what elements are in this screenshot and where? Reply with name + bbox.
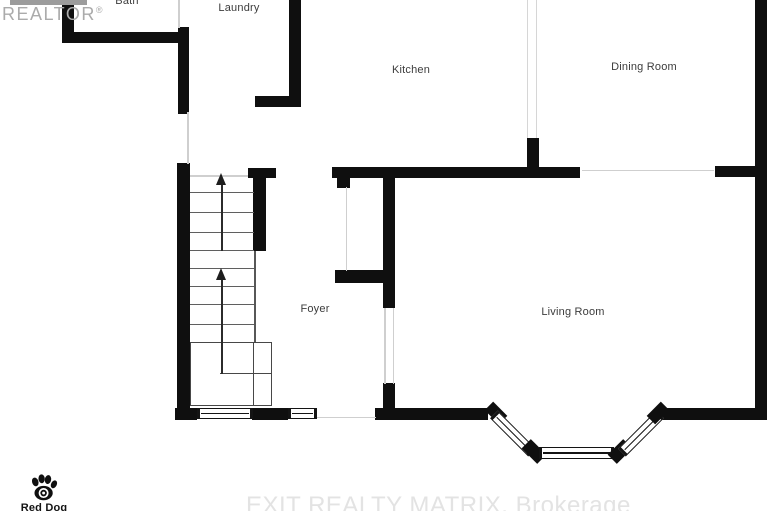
room-label-dining: Dining Room bbox=[611, 61, 677, 74]
wall-living-bottom-right bbox=[658, 408, 767, 420]
stair-rail-line bbox=[254, 251, 256, 343]
window-bay-center bbox=[539, 447, 614, 459]
wall-laundry-right bbox=[289, 0, 301, 107]
realtor-logo-text: REALTOR bbox=[2, 4, 96, 24]
stair-tread bbox=[190, 324, 256, 325]
brokerage-watermark: EXIT REALTY MATRIX, Brokerage bbox=[246, 492, 631, 511]
window-foyer-right bbox=[288, 408, 317, 419]
wall-kitchen-divider-stub bbox=[527, 138, 539, 168]
wall-stair-left bbox=[177, 163, 190, 420]
red-dog-logo: Red Dog bbox=[18, 474, 70, 511]
kitchen-dining-divider bbox=[527, 0, 537, 138]
room-label-living: Living Room bbox=[541, 306, 604, 319]
stair-tread bbox=[190, 304, 256, 305]
wall-right-outer bbox=[755, 0, 767, 420]
wall-dining-living-stub bbox=[715, 166, 756, 177]
red-dog-logo-text: Red Dog bbox=[18, 502, 70, 511]
wall-kitchen-foyer bbox=[332, 167, 580, 178]
opening-bath-top bbox=[178, 0, 180, 28]
wall-entry-pier bbox=[252, 408, 288, 420]
paw-print-icon bbox=[28, 474, 60, 501]
floor-plan: Bath Laundry Kitchen Dining Room Foyer L… bbox=[0, 0, 767, 511]
window-foyer-left bbox=[197, 408, 253, 419]
opening-front-door bbox=[316, 417, 376, 419]
wall-closet-top-stub bbox=[337, 177, 350, 188]
room-label-bath: Bath bbox=[115, 0, 138, 8]
up-arrow-icon bbox=[216, 173, 226, 185]
opening-foyer-living-left bbox=[384, 308, 386, 384]
wall-bottom-left-corner bbox=[175, 408, 197, 420]
realtor-logo: REALTOR® bbox=[2, 4, 103, 25]
room-label-foyer: Foyer bbox=[300, 303, 329, 316]
stair-landing-divider-h bbox=[220, 373, 272, 374]
wall-living-bottom-left bbox=[375, 408, 488, 420]
registered-trademark-symbol: ® bbox=[96, 5, 103, 15]
wall-closet-bottom-stub bbox=[335, 270, 387, 283]
stair-tread bbox=[190, 286, 256, 287]
wall-stair-right bbox=[253, 177, 266, 251]
room-label-kitchen: Kitchen bbox=[392, 64, 430, 77]
wall-bath-right bbox=[178, 27, 189, 114]
room-label-laundry: Laundry bbox=[218, 2, 259, 15]
opening-dining-living bbox=[582, 170, 714, 172]
opening-closet bbox=[346, 187, 348, 271]
stair-arrow-shaft bbox=[221, 279, 223, 374]
stair-arrow-shaft bbox=[221, 184, 223, 251]
wall-foyer-living-upper bbox=[383, 177, 395, 308]
opening-bath-door bbox=[187, 112, 189, 164]
up-arrow-icon bbox=[216, 268, 226, 280]
wall-bath-bottom bbox=[62, 32, 185, 43]
wall-laundry-bottom-stub bbox=[255, 96, 301, 107]
opening-foyer-living-right bbox=[393, 308, 395, 384]
